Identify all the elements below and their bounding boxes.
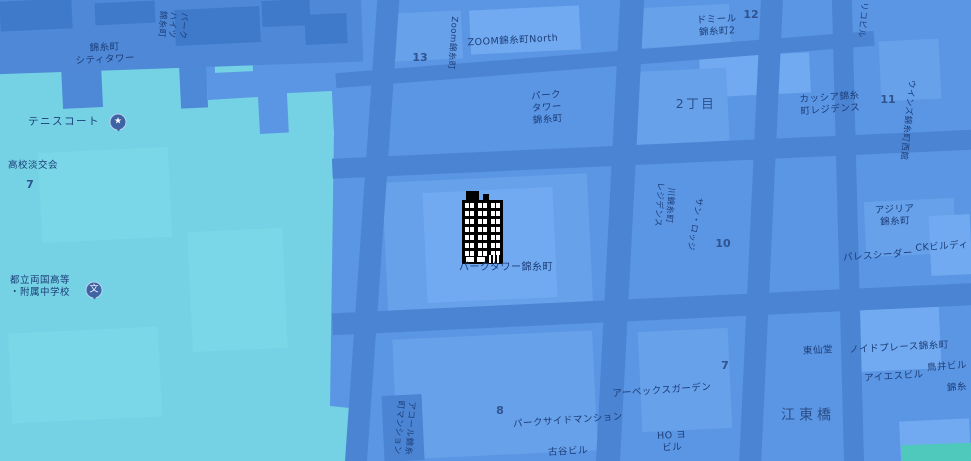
map-label-kinshi-partial: 錦糸 [947,381,968,394]
park-lawn [38,147,172,243]
map-label-ais-building: アイエスビル [864,369,924,385]
map-label-block-8: 8 [496,404,504,418]
map-label-torii-building: 鳥井ビル [927,360,968,375]
map-label-accord-mansion: アコール錦糸 町マンション [392,400,417,455]
park-lawn [187,228,288,352]
map-label-ryogoku-school: 都立両国高等 ・附属中学校 [10,275,70,299]
map-label-block-7: 7 [721,359,729,373]
map-canvas[interactable]: ★ 文 錦糸町 シティタワー パーク ハイツ 錦糸町 テニスコート 高校淡交会 … [0,0,971,461]
building-footprint [179,61,208,108]
map-label-kotobashi: 江東橋 [781,407,835,425]
building-footprint [0,0,73,32]
road-vertical [832,0,864,461]
map-label-tennis-court: テニスコート [28,115,100,128]
map-label-heights-topleft: パーク ハイツ 錦糸町 [155,10,189,39]
map-label-number-7: 7 [26,178,34,192]
map-label-ni-chome: 2丁目 [676,96,716,112]
building-footprint [261,0,310,27]
park-patch [287,91,334,139]
map-label-block-10: 10 [715,237,730,251]
building-footprint [95,1,156,26]
map-label-san-lodge: サン・ロッジ [684,196,704,251]
map-label-tosendo: 東仙堂 [803,344,834,357]
map-label-tankokai: 高校淡交会 [8,160,58,172]
star-icon: ★ [114,118,122,127]
map-label-park-tower-kinshicho: パークタワー錦糸町 [459,262,553,275]
map-label-park-tower-upper: パーク タワー 錦糸町 [531,89,563,127]
landmark-building-icon[interactable] [462,191,504,264]
park-patch [252,145,280,184]
school-badge-icon[interactable]: 文 [86,282,103,299]
map-label-azalea: アジリア 錦糸町 [875,203,916,229]
map-label-ho-building: HO ヨ ビル [657,429,687,454]
building-footprint [638,328,733,432]
map-label-domir: ドミール 錦糸町2 [696,13,737,39]
map-label-block-11: 11 [880,93,895,107]
map-label-cassia: カッシア錦糸 町レジデンス [799,90,861,118]
map-label-kawa-residence: 川錦糸町 レジデンス [652,182,676,228]
star-badge-icon[interactable]: ★ [110,114,127,131]
map-label-furuya-building: 古谷ビル [548,445,589,459]
school-icon: 文 [89,286,98,295]
map-label-block-12: 12 [743,8,758,22]
park-green-corner [902,443,971,461]
building-footprint [304,13,347,45]
park-lawn [8,327,162,424]
building-windows-icon [465,203,500,256]
map-label-block-13: 13 [412,51,427,65]
map-label-city-tower: 錦糸町 シティタワー [75,41,136,68]
map-label-zoom-vertical: Zoom錦糸町 [445,16,459,70]
